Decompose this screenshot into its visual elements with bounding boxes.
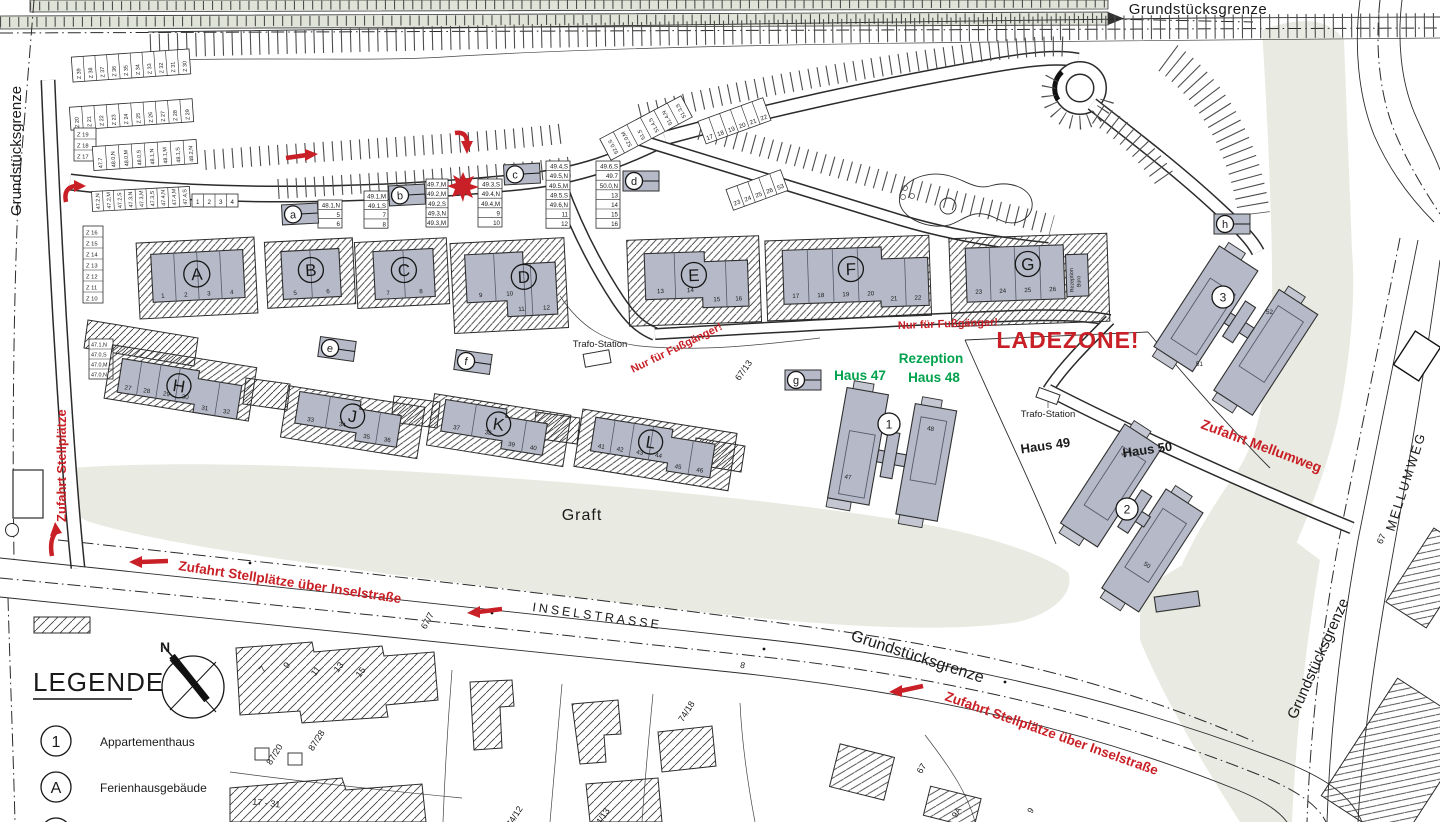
building-K: 37 38 39 40 K <box>426 394 570 467</box>
unit-number: 25 <box>1024 287 1032 294</box>
haus-49-label: Haus 49 <box>1020 435 1071 457</box>
area-se-corner <box>1140 530 1320 822</box>
parcel-74-12: 74/12 <box>504 804 524 822</box>
stall-label: Z 38 <box>88 67 95 78</box>
stall-label: 49.3,M <box>427 220 446 227</box>
boundary-bottomleft <box>8 598 15 822</box>
house-number: 52 <box>1266 309 1273 316</box>
building-letter: D <box>517 267 530 287</box>
compass-north-label: N <box>160 639 170 655</box>
neighbor-house <box>1386 528 1440 628</box>
band-2-cap <box>1108 12 1124 25</box>
marker-c: c <box>504 163 541 185</box>
legend: LEGENDE 1 Appartementhaus A Ferienhausge… <box>33 617 224 822</box>
stall-label: Z 15 <box>86 242 98 248</box>
stall-label: 48.1,S <box>175 146 182 162</box>
pond-stone <box>901 195 906 200</box>
grenze-top-label: Grundstücksgrenze <box>1129 1 1268 18</box>
stall-label: Z 21 <box>87 116 94 127</box>
haus-47-label: Haus 47 <box>834 368 886 383</box>
small-structure <box>288 753 302 765</box>
stall-label: Z 16 <box>86 231 98 237</box>
stall-label: Z 39 <box>76 68 83 79</box>
stalls-17-22: 17 18 19 20 21 22 <box>698 98 771 144</box>
building-letter: E <box>688 266 700 285</box>
building-letter: C <box>397 261 410 281</box>
stall-label: Z 31 <box>170 62 177 73</box>
stall-label: 47.4,N <box>161 190 168 206</box>
arrowhead <box>129 556 142 568</box>
stall-label: Z 25 <box>136 112 143 123</box>
unit-number: 16 <box>735 295 743 302</box>
comb-right-fan <box>1168 58 1254 214</box>
unit-number: 10 <box>506 290 514 297</box>
stall-label: 10 <box>493 220 500 227</box>
marker-d: d <box>623 171 659 191</box>
building-J: 33 34 35 36 J <box>280 386 424 459</box>
site-plan: Z 39 Z 38 Z 37 Z 36 Z 35 Z 34 Z 33 Z 32 … <box>0 0 1440 822</box>
legend-label-2: Ferienhausgebäude <box>100 781 207 795</box>
stall-label: 49.4,N <box>482 191 500 198</box>
graft-label: Graft <box>562 507 603 524</box>
stall-label: 47.2,N <box>95 193 102 209</box>
building-letter: F <box>845 260 856 279</box>
arrow-left-2 <box>478 609 502 612</box>
mellumweg-label: MELLUMWEG <box>1383 430 1429 533</box>
stall-label: Z 10 <box>86 297 98 303</box>
building-letter: A <box>191 265 204 285</box>
marker-letter: b <box>397 190 404 202</box>
house-9: 9 <box>1025 806 1036 816</box>
parcel-67: 67 <box>915 762 929 776</box>
marker-letter: h <box>1222 219 1228 231</box>
unit-number: 17 <box>792 293 800 300</box>
stall-label: 47.4,M <box>171 188 178 205</box>
building-D: 9 10 11 12 D <box>450 238 569 334</box>
legend-label-1: Appartementhaus <box>100 735 195 749</box>
stall-label: Z 33 <box>147 63 154 74</box>
stall-number: 4 <box>230 199 234 206</box>
survey-dot <box>1004 681 1007 684</box>
compass-needle <box>172 656 207 700</box>
stall-label: Z 14 <box>86 253 98 259</box>
parcel-67: 67 <box>1375 532 1388 545</box>
stall-label: 47.3,M <box>139 190 146 207</box>
band-1 <box>30 0 1108 12</box>
arrowhead <box>305 149 318 161</box>
stall-label: Z 30 <box>182 61 189 72</box>
stall-label: 48.2,N <box>188 146 195 162</box>
unit-number: 22 <box>914 295 922 302</box>
legend-symbol-1-text: 1 <box>52 734 61 751</box>
house-8: 8 <box>739 660 746 671</box>
marker-a: a <box>282 203 319 225</box>
trafo-2-label: Trafo-Station <box>1021 409 1076 420</box>
stall-label: Z 34 <box>135 64 142 75</box>
stall-label: 9 <box>497 210 501 217</box>
neighbor-house <box>236 642 438 723</box>
arrow-up-left <box>51 532 56 556</box>
stall-label: 49.2,M <box>427 191 446 198</box>
marker-letter: d <box>631 176 637 188</box>
building-E: 13 14 15 16 E <box>627 236 762 327</box>
stall-label: 49.6,N <box>550 202 568 209</box>
boundary-dashdot-topright <box>1108 19 1253 22</box>
legend-symbol-2-text: A <box>51 780 62 797</box>
marker-g: g <box>785 370 821 390</box>
arrow-left-3 <box>900 686 923 691</box>
table-a: 48.1,N 5 6 <box>318 200 342 228</box>
marker-f: f <box>454 350 492 375</box>
legend-title: LEGENDE <box>33 667 164 697</box>
z-row-mid: Z 20 Z 21 Z 22 Z 23 Z 24 Z 25 Z 26 Z 27 … <box>69 99 193 131</box>
stall-label: 49.5,S <box>550 192 568 199</box>
unit-number: 26 <box>1049 286 1057 293</box>
rezeption-label-1: Rezeption <box>899 351 964 366</box>
stall-label: 14 <box>611 202 618 209</box>
stall-label: 49.1,M <box>367 194 386 201</box>
unit-number: 21 <box>890 295 898 302</box>
stall-label: Z 37 <box>100 66 107 77</box>
stall-label: 47.4,S <box>182 188 189 204</box>
row-47: 47.7 48.0,N 48.0,M 48.0,S 48.1,N 48.1,M … <box>92 139 197 170</box>
stall-label: 8 <box>383 221 387 228</box>
building-letter: G <box>1021 255 1035 274</box>
stall-label: 11 <box>562 212 569 219</box>
parcel-87-28: 87/28 <box>306 728 326 752</box>
stall-label: 49.3,S <box>482 182 500 189</box>
apartment-number: 3 <box>1220 291 1227 305</box>
pond-stone <box>910 194 915 199</box>
legend-hatch-sample <box>34 617 90 633</box>
road-pond <box>640 140 1048 248</box>
stall-label: 49.4,M <box>481 201 500 208</box>
parcel-67-7: 67/7 <box>419 611 436 631</box>
unit-number: 23 <box>975 289 983 296</box>
marker-h: h <box>1214 214 1250 234</box>
boundary-topright-curve <box>1378 0 1440 214</box>
stall-label: Z 12 <box>86 275 98 281</box>
arrowhead <box>461 141 473 154</box>
stall-label: 49.5,N <box>550 173 568 180</box>
green-annotations: Haus 47 Rezeption Haus 48 <box>834 351 963 385</box>
stall-label: 13 <box>611 192 618 199</box>
stall-label: 48.1,M <box>162 146 169 163</box>
stall-label: 49.7 <box>606 173 619 180</box>
stall-label: 47.2,M <box>106 191 113 208</box>
building-A: 1 2 3 4 A <box>136 237 258 319</box>
stall-label: 49.7,M <box>427 182 446 189</box>
stall-label: 7 <box>383 212 387 219</box>
neighbor-house <box>572 700 621 764</box>
unit-number: 19 <box>842 291 850 298</box>
stall-label: Z 29 <box>185 109 192 120</box>
parcel-67-13: 67/13 <box>733 358 754 382</box>
stall-label: 5 <box>337 212 341 219</box>
stall-number: 3 <box>219 199 223 206</box>
grenze-bottom-label: Grundstücksgrenze <box>849 628 986 687</box>
arrow-right <box>286 155 307 158</box>
grenze-left-label: Grundstücksgrenze <box>8 86 25 216</box>
stall-label: Z 22 <box>99 115 106 126</box>
stall-label: 47.0,S <box>91 353 107 359</box>
stall-label: 49.2,S <box>428 201 446 208</box>
unit-number: 20 <box>867 290 875 297</box>
stall-label: Z 23 <box>111 114 118 125</box>
stall-label: 48.0,N <box>110 151 117 167</box>
stall-label: 49.1,S <box>368 203 386 210</box>
table-b: 49.1,M 49.1,S 7 8 <box>364 191 388 228</box>
stall-label: 47.2,S <box>117 192 124 208</box>
legend-symbol-3-partial <box>41 818 71 822</box>
zufahrt-stellplaetze-label: Zufahrt Stellplätze <box>54 409 69 522</box>
unit-number: 12 <box>543 304 551 311</box>
rezeption-buero-label: Rezeption <box>1069 268 1076 292</box>
stall-label: Z 13 <box>86 264 98 270</box>
building-C: 7 8 C <box>354 238 449 309</box>
rezeption-buero-label: Büro <box>1076 276 1082 288</box>
small-building-left <box>13 470 43 518</box>
comb-48 <box>205 133 566 160</box>
stall-label: 48.1,N <box>322 203 340 210</box>
ladezone-label: LADEZONE! <box>996 327 1139 353</box>
trafo-1-label: Trafo-Station <box>573 339 628 350</box>
stall-label: Z 24 <box>124 113 131 124</box>
stall-label: 47.0,M <box>91 363 108 369</box>
building-G: 23 24 25 26 G Rezeption Büro <box>949 233 1110 326</box>
marker-letter: g <box>793 375 799 387</box>
stall-label: 47.0,N <box>91 373 107 379</box>
stall-label: 47.7 <box>98 157 105 168</box>
stall-label: Z 35 <box>123 65 130 76</box>
small-building-right <box>1394 331 1440 381</box>
stall-number: 1 <box>196 199 200 206</box>
neighbor-house <box>830 744 895 800</box>
building-letter: B <box>305 261 317 281</box>
topright-road-edge-1 <box>1357 0 1434 222</box>
stall-label: Z 17 <box>77 155 89 161</box>
apartment-1: 47 48 <box>825 380 958 530</box>
trafo-1-box <box>583 350 611 367</box>
arrow-left-1 <box>140 561 168 562</box>
stall-number: 2 <box>207 199 211 206</box>
stall-label: 16 <box>611 221 618 228</box>
apartment-number: 2 <box>1124 503 1131 517</box>
unit-number: 15 <box>713 296 721 303</box>
building-H: 27 28 29 30 31 32 H <box>104 345 257 421</box>
red-star <box>447 172 479 202</box>
house-number: 51 <box>1196 361 1203 368</box>
survey-dot <box>249 562 252 565</box>
neighbor-house <box>1321 678 1440 822</box>
stall-label: Z 28 <box>173 110 180 121</box>
stall-label: Z 20 <box>74 117 81 128</box>
stall-label: Z 27 <box>160 111 167 122</box>
stall-label: 48.0,S <box>136 149 143 165</box>
stall-label: 47.1,N <box>91 343 107 349</box>
table-mid: 49.4,S 49.5,N 49.5,M 49.5,S 49.6,N 11 12 <box>546 161 570 228</box>
stall-label: Z 36 <box>112 66 119 77</box>
table-star: 49.7,M 49.2,M 49.2,S 49.3,N 49.3,M <box>426 179 448 227</box>
table-d: 49.6,S 49.7 50.0,N 13 14 15 16 <box>596 161 620 228</box>
stall-label: 50.0,N <box>600 183 618 190</box>
building-F: 17 18 19 20 21 22 F <box>765 235 932 321</box>
stall-label: Z 18 <box>77 144 89 150</box>
compass: N <box>160 639 224 718</box>
stall-label: 49.6,S <box>600 164 618 171</box>
building-B: 5 6 B <box>264 238 355 309</box>
z-col-b: Z 16 Z 15 Z 14 Z 13 Z 12 Z 11 Z 10 <box>83 226 103 303</box>
unit-number: 11 <box>518 306 525 313</box>
rezeption-label-2: Haus 48 <box>908 370 960 385</box>
apartment-number: 1 <box>886 418 893 432</box>
stall-label: 49.4,S <box>550 164 568 171</box>
unit-number: 18 <box>817 292 825 299</box>
stall-label: 48.0,M <box>123 149 130 166</box>
stall-label: 12 <box>561 221 568 228</box>
z-row-top: Z 39 Z 38 Z 37 Z 36 Z 35 Z 34 Z 33 Z 32 … <box>71 49 190 82</box>
stall-label: 47.3,N <box>128 191 135 207</box>
table-c: 49.3,S 49.4,N 49.4,M 9 10 <box>478 179 502 227</box>
arrow-entry-topleft <box>65 186 75 202</box>
marker-e: e <box>318 337 356 362</box>
stall-label: Z 11 <box>86 286 97 292</box>
stall-label: Z 26 <box>148 112 155 123</box>
stall-label: Z 32 <box>159 62 166 73</box>
building-L: 41 42 43 44 45 46 L <box>574 409 737 491</box>
stall-label: 15 <box>611 212 618 219</box>
stall-label: 48.1,N <box>149 148 156 164</box>
fussgaenger-label-1: Nur für Fußgänger! <box>898 317 999 332</box>
stall-label: 6 <box>337 221 341 228</box>
unit-number: 13 <box>657 288 665 295</box>
neighbor-house <box>658 726 716 772</box>
row-472-nums: 1 2 3 4 <box>192 194 238 207</box>
unit-number: 24 <box>999 288 1007 295</box>
survey-dot <box>763 648 766 651</box>
neighbor-house <box>470 680 514 750</box>
marker-b: b <box>389 184 426 206</box>
small-circle-left <box>6 524 19 537</box>
stall-label: 47.3,S <box>150 190 157 206</box>
stall-label: Z 19 <box>77 133 89 139</box>
pond <box>899 174 1032 226</box>
stall-label: 49.5,M <box>549 183 568 190</box>
arrowhead <box>50 522 62 536</box>
stall-label: 49.3,N <box>428 210 446 217</box>
parcel-74-18: 74/18 <box>676 699 696 723</box>
site-plan-svg: Z 39 Z 38 Z 37 Z 36 Z 35 Z 34 Z 33 Z 32 … <box>0 0 1440 822</box>
zufahrt-inselstrasse-label-2: Zufahrt Stellplätze über Inselstraße <box>943 689 1161 778</box>
